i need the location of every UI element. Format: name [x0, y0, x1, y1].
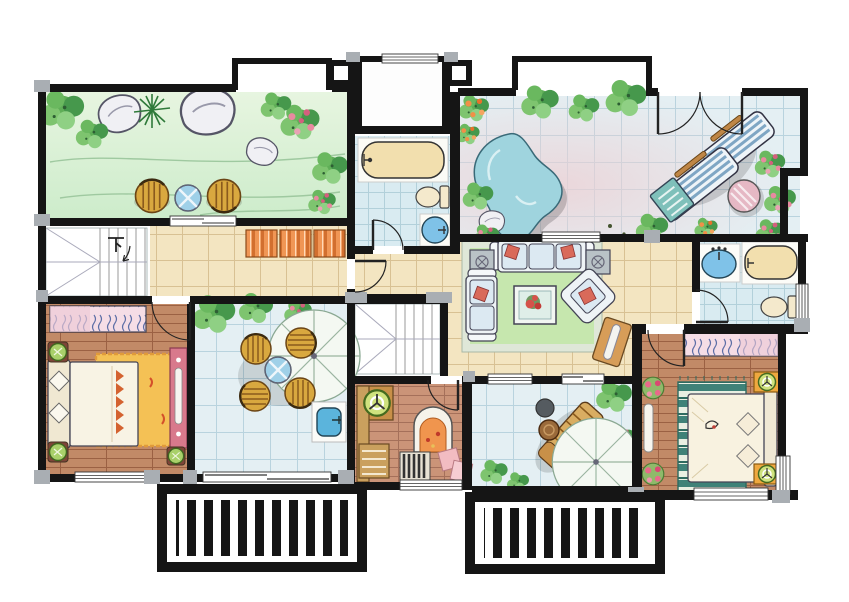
wall-planter — [512, 56, 652, 62]
column — [338, 470, 354, 484]
floor-plan — [0, 0, 849, 602]
wall — [355, 376, 431, 384]
dresser — [644, 404, 653, 452]
flower-pot — [642, 463, 664, 485]
closet-unit — [280, 230, 311, 257]
wall — [236, 218, 347, 226]
wall-planter — [232, 58, 332, 64]
glass-table — [175, 185, 201, 211]
floor-hall-study — [448, 296, 462, 376]
stairs-main — [46, 228, 147, 296]
window — [694, 488, 768, 500]
window — [542, 232, 600, 242]
round-side-table — [539, 420, 559, 440]
wall — [632, 334, 642, 498]
column — [183, 470, 197, 484]
sink — [420, 214, 450, 246]
pergola-south — [470, 497, 660, 569]
wall — [780, 168, 808, 176]
column — [345, 292, 367, 303]
red-pillow — [561, 245, 576, 260]
corner-plant — [48, 342, 68, 362]
flower-pot — [642, 377, 664, 399]
wall — [798, 242, 806, 284]
wall — [692, 242, 700, 292]
corner-plant — [167, 447, 185, 465]
column — [444, 52, 458, 62]
wall — [354, 126, 450, 134]
fireplace — [414, 407, 452, 452]
nightstand — [754, 372, 780, 392]
column — [34, 470, 50, 484]
corridor — [246, 230, 345, 257]
rattan-chair — [240, 381, 270, 411]
floor-plan-canvas — [0, 0, 849, 602]
column — [794, 318, 810, 332]
column — [644, 230, 660, 243]
rattan-chair — [285, 378, 315, 408]
wall — [462, 482, 472, 490]
wall — [440, 304, 448, 376]
rattan-chair — [208, 180, 241, 213]
column — [34, 80, 50, 92]
pier-core — [452, 66, 466, 80]
sliding-door — [562, 374, 604, 384]
wall — [600, 234, 644, 242]
wall — [450, 92, 460, 254]
bathtub — [742, 242, 800, 284]
rattan-chair — [136, 180, 169, 213]
window — [382, 54, 438, 63]
bed — [48, 360, 138, 448]
floor-entry-niche — [362, 62, 442, 126]
wall — [742, 88, 808, 96]
wall — [38, 84, 46, 482]
bed-floral-dot — [712, 425, 716, 429]
dresser — [170, 348, 187, 448]
sofa-two-seat — [466, 269, 497, 341]
stairs-secondary — [355, 304, 440, 374]
column — [463, 371, 475, 382]
window — [776, 456, 790, 494]
corner-plant — [48, 442, 68, 462]
wall — [347, 304, 355, 490]
rock — [181, 88, 235, 134]
wall — [604, 376, 640, 384]
rattan-chair — [286, 328, 316, 358]
wall — [800, 88, 808, 176]
living-room — [462, 240, 632, 367]
wall — [532, 376, 562, 384]
wall — [632, 324, 646, 334]
rattan-chair — [241, 334, 271, 364]
toilet — [416, 186, 449, 208]
floor-hall-gap — [440, 254, 448, 296]
wall — [646, 88, 658, 96]
window — [75, 472, 151, 482]
wall — [778, 334, 786, 456]
pergola-southwest — [162, 489, 362, 567]
glass-table — [265, 357, 291, 383]
column — [34, 214, 50, 226]
wall — [442, 56, 450, 134]
wall — [458, 88, 516, 96]
wall — [190, 296, 347, 304]
round-table-pink — [728, 180, 760, 212]
wall — [38, 84, 236, 92]
window — [488, 374, 532, 384]
sink — [698, 244, 740, 282]
wall — [780, 176, 788, 242]
wall — [404, 246, 450, 254]
wardrobe-section — [50, 306, 90, 332]
pergola-slats — [484, 508, 646, 558]
bed-mattress — [70, 362, 138, 446]
window — [400, 480, 462, 490]
wall — [462, 376, 472, 490]
radiator — [400, 452, 430, 480]
sliding-door — [203, 472, 331, 482]
head-cushion — [536, 399, 554, 417]
wall — [355, 246, 373, 254]
column — [144, 470, 160, 484]
wall — [38, 296, 152, 304]
wall — [660, 234, 808, 242]
speckle — [608, 224, 612, 228]
wall — [354, 56, 362, 134]
column — [36, 290, 48, 302]
outdoor-sink — [312, 402, 346, 442]
wall — [460, 234, 542, 242]
closet-unit — [246, 230, 277, 257]
column — [772, 490, 790, 503]
pergola-slats — [176, 500, 348, 556]
sofa-three-seat — [490, 240, 594, 272]
wall — [347, 84, 355, 259]
pier-core — [334, 66, 348, 80]
wall — [684, 324, 808, 334]
wall — [38, 218, 170, 226]
column — [440, 292, 452, 303]
desk-bowl — [364, 390, 390, 416]
floor-hall-east — [632, 242, 692, 324]
bathtub — [362, 142, 444, 178]
window — [796, 284, 808, 322]
wall-planter — [646, 56, 652, 90]
coffee-table — [514, 286, 556, 324]
window — [170, 216, 236, 226]
toilet — [761, 296, 797, 318]
closet-unit — [314, 230, 345, 257]
bench-slats — [359, 444, 389, 478]
column — [346, 52, 360, 62]
